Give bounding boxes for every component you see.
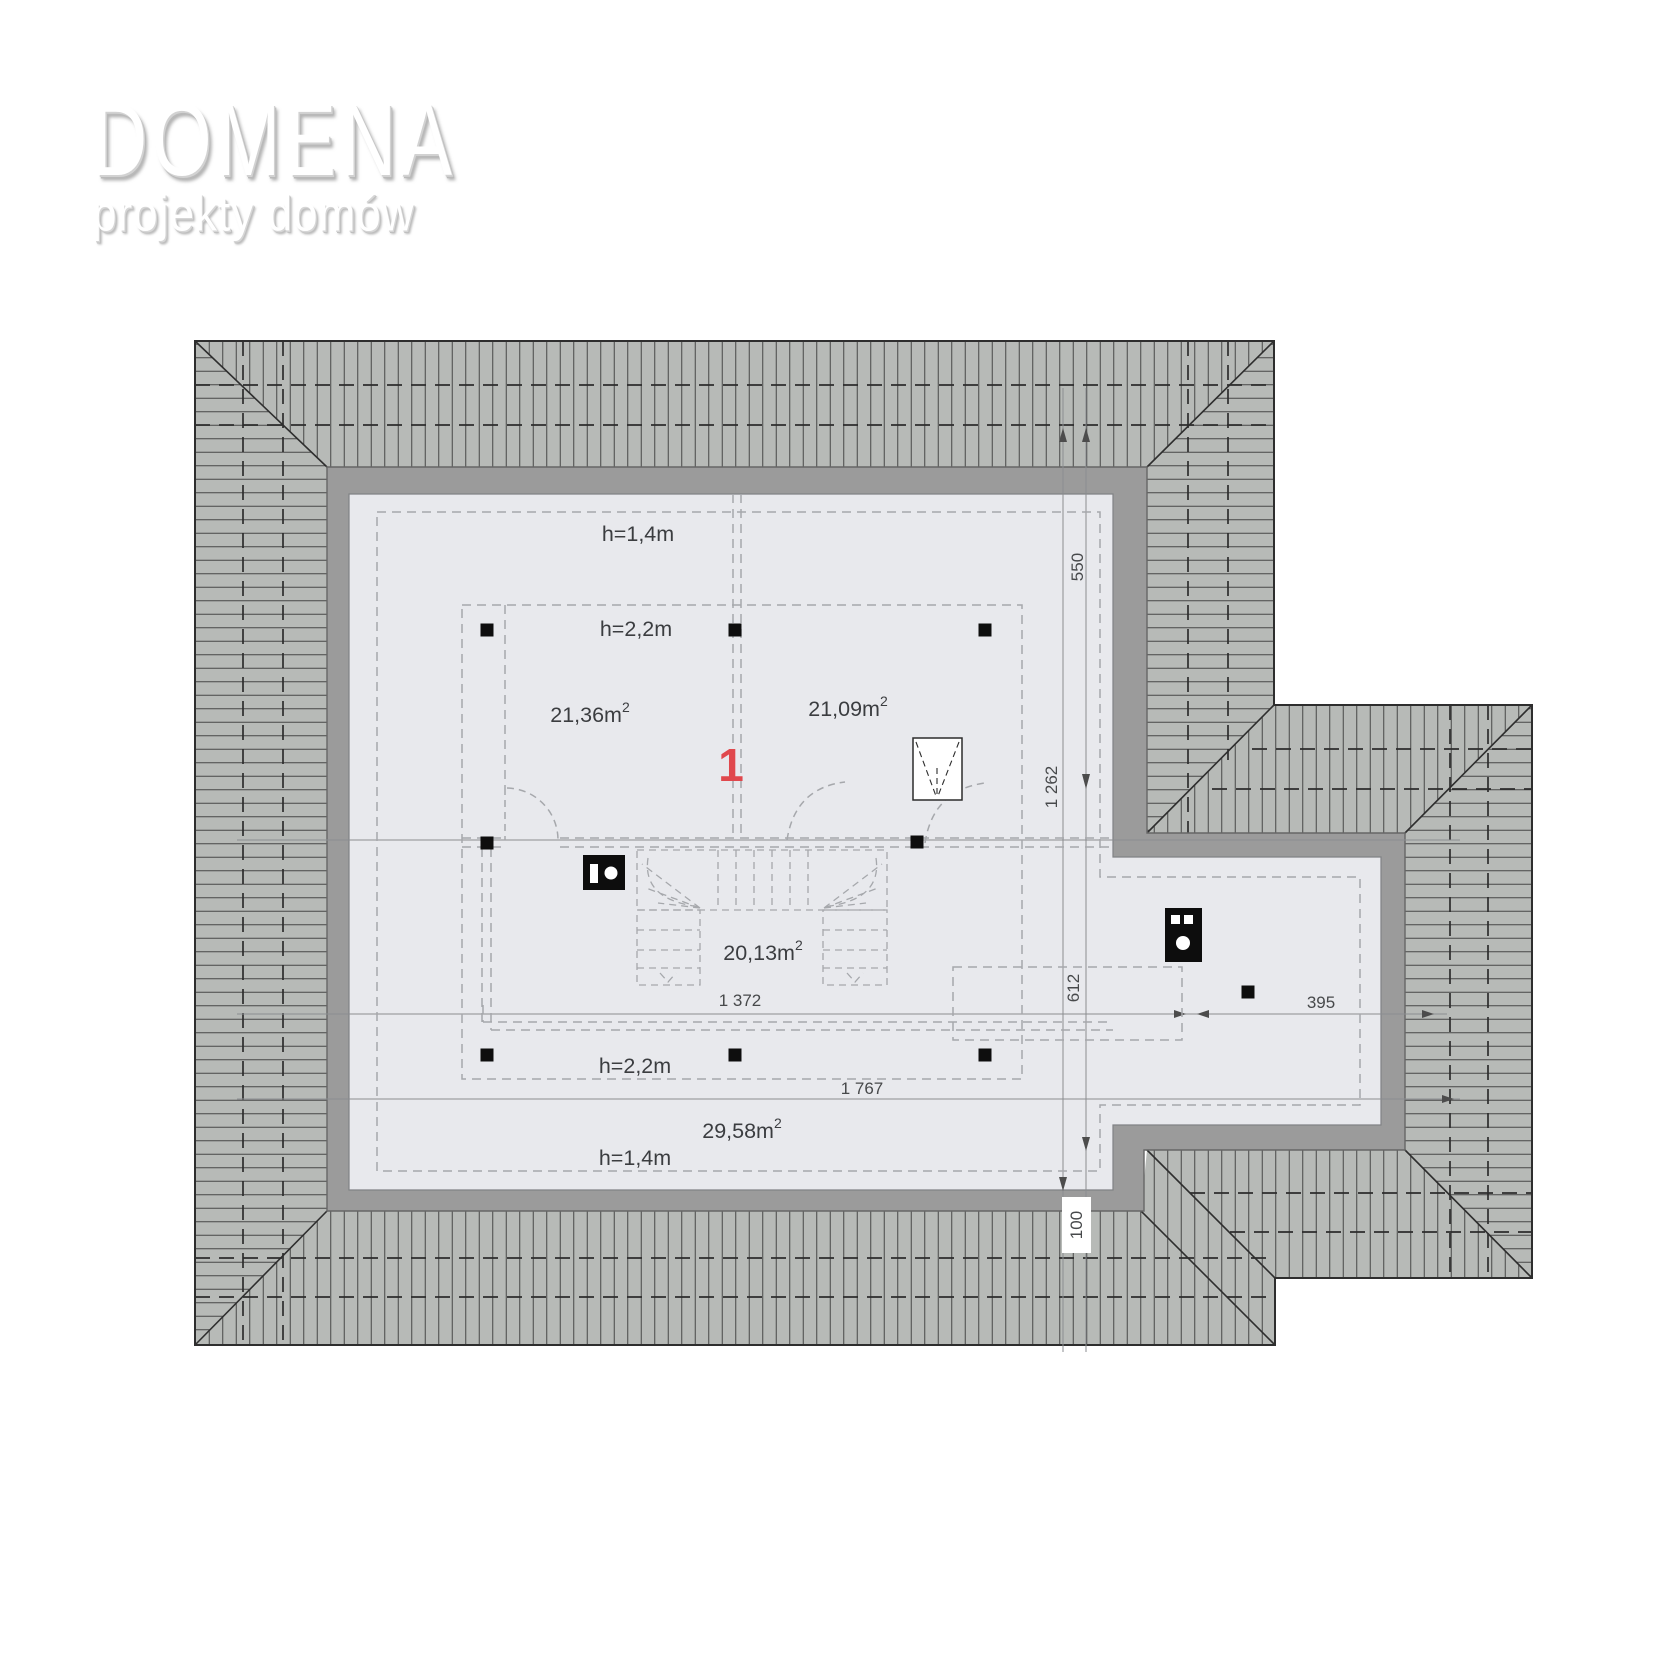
dim-interior-width: 1 372 [719,991,762,1010]
column-post [481,624,494,637]
area-value: 21,36m [550,703,622,727]
page: DOMENA projekty domów [0,0,1680,1680]
area-value: 20,13m [723,941,795,965]
zone-label-top-high: h=2,2m [600,617,672,641]
chimney-flue-b [1184,915,1193,924]
area-label-right: 21,09m2 [808,693,888,721]
area-sup: 2 [622,699,630,715]
area-label-stairs: 20,13m2 [723,937,803,965]
chimney-extension [1165,908,1202,962]
dim-wall-offset: 100 [1067,1211,1086,1239]
column-post [481,1049,494,1062]
dim-extension-width: 395 [1307,993,1335,1012]
area-sup: 2 [795,937,803,953]
chimney-icon [583,855,625,890]
column-post [979,624,992,637]
area-label-left: 21,36m2 [550,699,630,727]
zone-label-bottom-low: h=1,4m [599,1146,671,1170]
column-post [729,1049,742,1062]
column-post [729,624,742,637]
column-post [911,836,924,849]
column-post [979,1049,992,1062]
column-post [481,837,494,850]
dim-right-top: 550 [1068,553,1087,581]
chimney-main [583,855,625,890]
roof-window [913,738,962,800]
dim-right-mid: 1 262 [1042,766,1061,809]
unit-number: 1 [718,739,744,791]
area-sup: 2 [774,1115,782,1131]
zone-label-bottom-high: h=2,2m [599,1054,671,1078]
area-sup: 2 [880,693,888,709]
chimney-flue-slot [590,864,598,883]
chimney-flue-round [605,867,618,880]
dim-extension-depth: 612 [1064,974,1083,1002]
column-post [1242,986,1255,999]
area-value: 29,58m [702,1119,774,1143]
roof-band-top [195,341,1274,467]
zone-label-top-low: h=1,4m [602,522,674,546]
area-label-south: 29,58m2 [702,1115,782,1143]
area-value: 21,09m [808,697,880,721]
chimney-icon [1165,908,1202,962]
chimney-flue-a [1171,915,1180,924]
dim-total-width: 1 767 [841,1079,884,1098]
floor-plan-svg: h=1,4m h=2,2m h=2,2m h=1,4m 21,36m2 21,0… [0,0,1680,1680]
roof-band-left [195,341,327,1345]
chimney-flue-round [1176,936,1190,950]
